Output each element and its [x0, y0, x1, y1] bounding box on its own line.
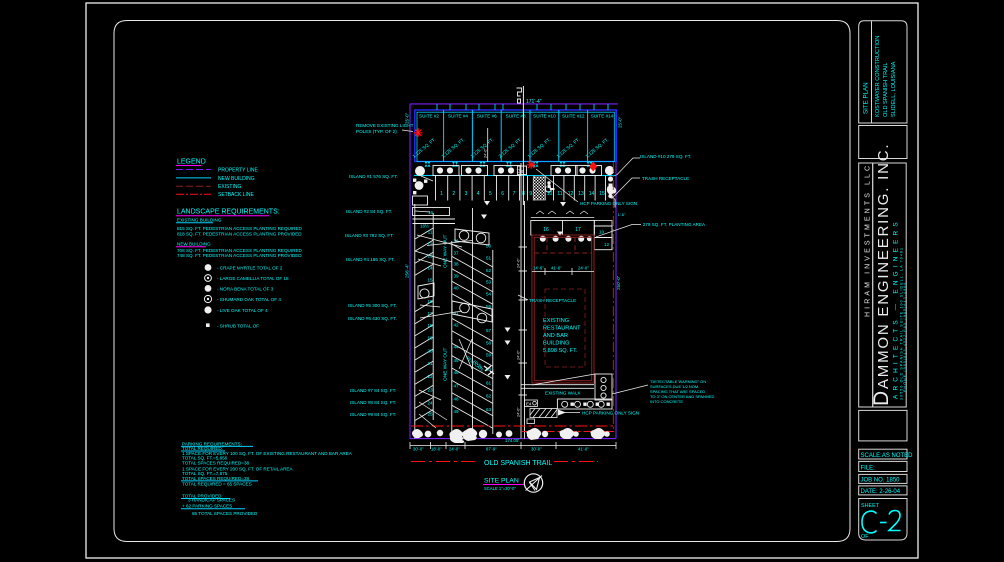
svg-text:815 SQ. FT. PEDESTRIAN ACCESS: 815 SQ. FT. PEDESTRIAN ACCESS PLANTING R…	[177, 226, 303, 231]
svg-text:ISLAND #7 84 SQ. FT.: ISLAND #7 84 SQ. FT.	[350, 388, 396, 393]
svg-text:54: 54	[486, 292, 492, 297]
svg-text:16: 16	[428, 210, 434, 215]
svg-text:59: 59	[486, 353, 492, 358]
svg-text:14: 14	[427, 266, 433, 271]
svg-text:24'-0": 24'-0"	[517, 350, 521, 360]
svg-text:174.05': 174.05'	[505, 438, 519, 443]
svg-text:17: 17	[427, 311, 433, 316]
svg-text:7: 7	[513, 191, 516, 197]
svg-text:65 TOTAL SPACES PROVIDED: 65 TOTAL SPACES PROVIDED	[192, 511, 258, 516]
svg-text:- CRAPE MYRTLE TOTAL OF 2: - CRAPE MYRTLE TOTAL OF 2	[217, 266, 283, 271]
svg-text:INTO CONCRETE.: INTO CONCRETE.	[650, 399, 684, 404]
svg-text:11: 11	[428, 230, 433, 235]
svg-text:TRASH RECEPTACLE: TRASH RECEPTACLE	[642, 176, 689, 181]
svg-text:49: 49	[453, 409, 459, 414]
svg-text:2: 2	[452, 191, 455, 197]
svg-text:TRASH RECEPTACLE: TRASH RECEPTACLE	[529, 298, 576, 303]
svg-text:47: 47	[453, 383, 459, 388]
svg-text:HIRAM INVESTMENTS LLC: HIRAM INVESTMENTS LLC	[865, 163, 872, 317]
svg-text:ISLAND #1 576 SQ. FT.: ISLAND #1 576 SQ. FT.	[349, 174, 398, 179]
svg-text:41'-0": 41'-0"	[578, 446, 589, 451]
svg-text:14: 14	[589, 191, 595, 197]
svg-text:- SHUMARD OAK TOTAL OF 4: - SHUMARD OAK TOTAL OF 4	[217, 297, 281, 302]
svg-text:15: 15	[427, 278, 433, 283]
svg-text:41'-6": 41'-6"	[551, 266, 562, 271]
svg-text:PROPERTY LINE: PROPERTY LINE	[218, 168, 258, 174]
svg-text:SITE PLAN: SITE PLAN	[863, 82, 870, 114]
svg-text:TOTAL SPACES REQUIRED=38: TOTAL SPACES REQUIRED=38	[182, 460, 250, 465]
svg-text:22: 22	[427, 374, 433, 379]
svg-text:LEGEND: LEGEND	[177, 159, 206, 166]
svg-text:52: 52	[486, 268, 492, 273]
svg-text:- LARGE CAMELLIA TOTAL OF 18: - LARGE CAMELLIA TOTAL OF 18	[217, 276, 289, 281]
svg-text:REMOVE EXISTING LIGHT: REMOVE EXISTING LIGHT	[356, 123, 414, 128]
svg-text:- SHRUB TOTAL OF: - SHRUB TOTAL OF	[217, 323, 259, 328]
svg-text:HCP PARKING ONLY SIGN: HCP PARKING ONLY SIGN	[580, 201, 637, 206]
svg-text:POLES (TYP. OF 2): POLES (TYP. OF 2)	[356, 129, 397, 134]
svg-text:SITE PLAN: SITE PLAN	[484, 478, 519, 485]
svg-text:JOB NO. 1850: JOB NO. 1850	[861, 478, 901, 484]
svg-text:18: 18	[427, 323, 433, 328]
svg-text:ONE WAY OUT: ONE WAY OUT	[443, 347, 449, 381]
svg-text:15: 15	[599, 191, 605, 197]
svg-text:3 HANDICAP SPACES: 3 HANDICAP SPACES	[188, 498, 235, 503]
svg-text:EXISTING: EXISTING	[218, 184, 241, 190]
svg-text:24'-0": 24'-0"	[517, 407, 521, 417]
svg-text:- NORA BENA TOTAL OF 3: - NORA BENA TOTAL OF 3	[217, 286, 274, 291]
svg-text:16: 16	[427, 299, 433, 304]
svg-text:HCP PARKING ONLY SIGN: HCP PARKING ONLY SIGN	[582, 411, 639, 416]
svg-text:6: 6	[501, 191, 504, 197]
svg-text:24'-0": 24'-0"	[484, 148, 488, 158]
svg-text:24'-0": 24'-0"	[517, 258, 521, 268]
svg-text:17: 17	[575, 227, 581, 233]
svg-text:EXISTING BUILDING: EXISTING BUILDING	[177, 218, 222, 223]
svg-text:39: 39	[453, 274, 459, 279]
svg-text:23: 23	[427, 388, 433, 393]
svg-text:1: 1	[440, 191, 443, 197]
svg-text:SUITE #6: SUITE #6	[477, 114, 497, 119]
svg-text:24'-0": 24'-0"	[578, 266, 589, 271]
svg-text:NEW BUILDING: NEW BUILDING	[177, 242, 211, 247]
svg-text:SHEET: SHEET	[861, 503, 880, 509]
svg-text:ARCHITECTS — ENGINEERS: ARCHITECTS — ENGINEERS	[893, 218, 900, 399]
svg-text:250'-0": 250'-0"	[616, 275, 621, 290]
svg-text:10: 10	[547, 191, 553, 197]
svg-text:SLIDELL, LOUISIANA: SLIDELL, LOUISIANA	[891, 61, 897, 117]
svg-text:ISLAND #8 84 SQ. FT.: ISLAND #8 84 SQ. FT.	[350, 400, 396, 405]
svg-text:SUITE #2: SUITE #2	[419, 114, 439, 119]
svg-text:4: 4	[477, 191, 480, 197]
svg-text:21: 21	[427, 361, 433, 366]
svg-text:19: 19	[427, 336, 433, 341]
svg-text:24: 24	[427, 401, 433, 406]
svg-text:63: 63	[486, 407, 492, 412]
svg-text:SUITE #4: SUITE #4	[448, 114, 468, 119]
svg-text:TOTAL SPACES REQUIRED=38: TOTAL SPACES REQUIRED=38	[182, 476, 250, 481]
svg-text:18'-0": 18'-0"	[431, 446, 442, 451]
svg-text:LANDSCAPE REQUIREMENTS:: LANDSCAPE REQUIREMENTS:	[177, 209, 280, 216]
svg-text:171'-4": 171'-4"	[526, 99, 542, 105]
svg-text:42: 42	[453, 323, 459, 328]
svg-text:FILE:: FILE:	[861, 465, 876, 471]
svg-text:ISLAND #5 300 SQ. FT.: ISLAND #5 300 SQ. FT.	[348, 303, 397, 308]
svg-text:RESTAURANT: RESTAURANT	[543, 326, 581, 332]
svg-text:NEW BUILDING: NEW BUILDING	[218, 176, 255, 182]
svg-text:14'-6": 14'-6"	[533, 266, 544, 271]
svg-text:46: 46	[453, 370, 459, 375]
svg-text:SUITE #14: SUITE #14	[591, 114, 614, 119]
svg-text:16½: 16½	[420, 223, 429, 229]
svg-text:ISLAND #9 84 SQ. FT.: ISLAND #9 84 SQ. FT.	[350, 412, 396, 417]
svg-text:SUITE #10: SUITE #10	[533, 114, 556, 119]
svg-text:SETBACK LINE: SETBACK LINE	[218, 192, 255, 198]
svg-text:ISLAND #10 279 SQ. FT.: ISLAND #10 279 SQ. FT.	[640, 154, 691, 159]
svg-text:TOTAL REQUIRED = 65 SPACES: TOTAL REQUIRED = 65 SPACES	[182, 482, 252, 487]
svg-text:OLD SPANISH TRAIL: OLD SPANISH TRAIL	[484, 460, 552, 467]
svg-text:9: 9	[529, 191, 532, 197]
svg-text:256'-4": 256'-4"	[405, 263, 410, 278]
svg-text:38: 38	[453, 262, 459, 267]
svg-text:BUILDING: BUILDING	[543, 341, 569, 347]
svg-text:25: 25	[427, 412, 433, 417]
svg-text:SCALE:AS NOTED: SCALE:AS NOTED	[861, 453, 914, 459]
svg-text:818 SQ. FT. PEDESTRIAN ACCESS: 818 SQ. FT. PEDESTRIAN ACCESS PLANTING P…	[177, 231, 302, 236]
svg-text:5: 5	[489, 191, 492, 197]
svg-text:62: 62	[486, 394, 492, 399]
svg-text:45: 45	[453, 358, 459, 363]
svg-text:24'-0": 24'-0"	[449, 446, 460, 451]
svg-text:SUITE #12: SUITE #12	[562, 114, 585, 119]
svg-text:58: 58	[486, 341, 492, 346]
svg-text:57: 57	[486, 328, 492, 333]
svg-text:61: 61	[486, 381, 492, 386]
svg-text:ISLAND #3 792 SQ. FT.: ISLAND #3 792 SQ. FT.	[345, 233, 394, 238]
svg-text:25'-0": 25'-0"	[618, 116, 623, 128]
svg-text:EXISTING WALK: EXISTING WALK	[545, 391, 582, 396]
svg-text:16: 16	[543, 227, 549, 233]
svg-text:AND BAR: AND BAR	[543, 333, 568, 339]
svg-text:ONE WAY OUT: ONE WAY OUT	[443, 234, 449, 268]
svg-text:748 SQ. FT. PEDESTRIAN ACCESS: 748 SQ. FT. PEDESTRIAN ACCESS PLANTING P…	[177, 253, 302, 258]
svg-text:PHONE (985)643-4522 FAX (985: PHONE (985)643-4522 FAX (985)643-4966	[903, 282, 907, 392]
svg-text:SCALE 1"=30'-0": SCALE 1"=30'-0"	[484, 486, 516, 491]
svg-text:279 SQ. FT. PLANTING AREA: 279 SQ. FT. PLANTING AREA	[643, 222, 706, 227]
svg-text:ISLAND #6 430 SQ. FT.: ISLAND #6 430 SQ. FT.	[348, 316, 397, 321]
svg-text:48: 48	[453, 397, 459, 402]
svg-text:ISLAND #2 84 SQ. FT.: ISLAND #2 84 SQ. FT.	[346, 209, 392, 214]
svg-text:5,898 SQ. FT.: 5,898 SQ. FT.	[543, 348, 578, 354]
svg-text:51: 51	[486, 256, 492, 261]
svg-text:OLD SPANISH TRAIL: OLD SPANISH TRAIL	[883, 62, 889, 117]
svg-text:E4: E4	[526, 401, 532, 406]
svg-text:44: 44	[453, 345, 459, 350]
svg-text:30'-0": 30'-0"	[531, 446, 542, 451]
svg-text:13: 13	[578, 191, 584, 197]
svg-text:- LIVE OAK TOTAL OF 4: - LIVE OAK TOTAL OF 4	[217, 308, 268, 313]
svg-text:53: 53	[486, 280, 492, 285]
svg-text:11: 11	[557, 191, 562, 197]
svg-text:+ 62 PARKING SPACES: + 62 PARKING SPACES	[182, 504, 232, 509]
svg-text:KOSTMAYER CONSTRUCTION: KOSTMAYER CONSTRUCTION	[875, 36, 881, 117]
svg-text:20: 20	[427, 349, 433, 354]
svg-text:OF: OF	[861, 534, 869, 540]
svg-text:40: 40	[453, 286, 459, 291]
svg-text:30'-0": 30'-0"	[413, 446, 424, 451]
svg-text:EXISTING: EXISTING	[543, 318, 569, 324]
svg-text:87'-9": 87'-9"	[486, 446, 497, 451]
svg-text:DATE: 2-26-04: DATE: 2-26-04	[861, 489, 901, 495]
svg-text:12: 12	[604, 242, 610, 247]
svg-text:ISLAND #4 186 SQ. FT.: ISLAND #4 186 SQ. FT.	[346, 257, 395, 262]
svg-text:37: 37	[453, 251, 459, 256]
svg-text:1'-6": 1'-6"	[618, 212, 627, 217]
svg-text:3: 3	[465, 191, 468, 197]
svg-text:10: 10	[599, 230, 605, 235]
